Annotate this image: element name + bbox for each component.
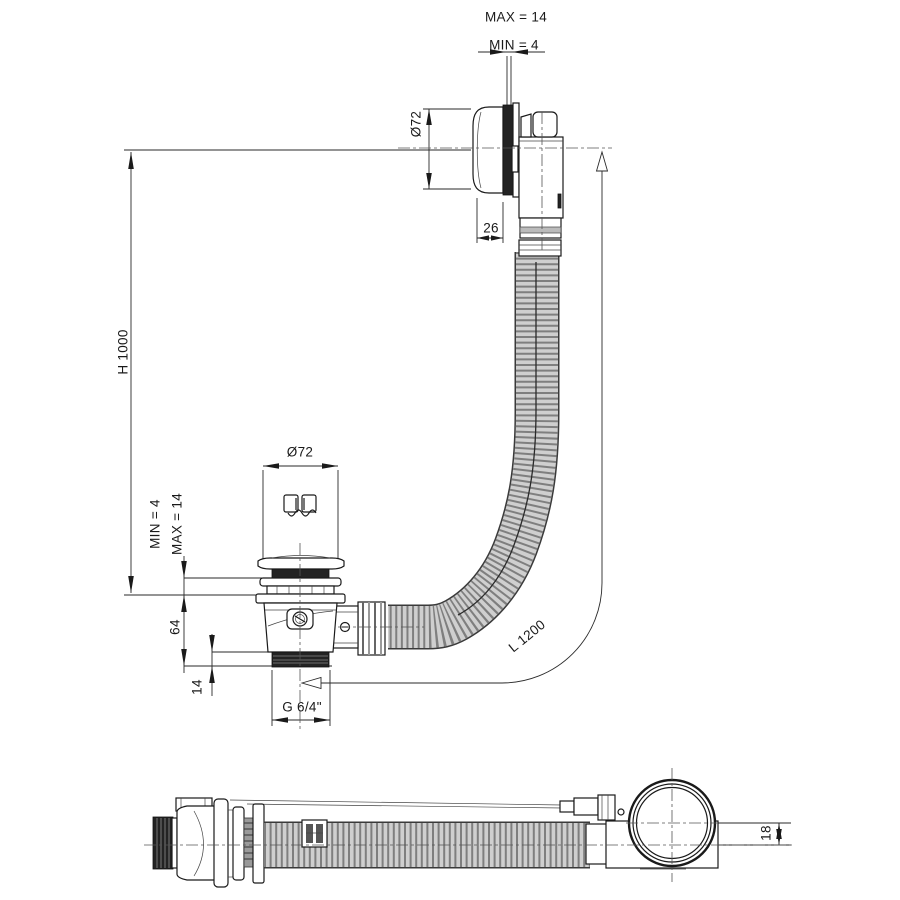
plug-gasket — [272, 569, 329, 578]
dim-label-max-panel-drain: MAX = 14 — [170, 493, 185, 555]
dim-label-plug-diameter: Ø72 — [287, 445, 313, 460]
drain-plug-cap — [258, 558, 344, 569]
dim-label-min-panel-drain: MIN = 4 — [148, 499, 163, 549]
dim-label-axis-offset: 18 — [759, 825, 774, 841]
drawing-sheet: MAX = 14 MIN = 4 Ø72 26 H 1000 Ø72 MIN =… — [0, 0, 900, 900]
centerlines — [144, 112, 792, 882]
drain-body-flange — [256, 594, 345, 603]
dimension-lines — [124, 49, 791, 845]
dim-label-knob-diameter: Ø72 — [409, 111, 424, 137]
hose-clip — [302, 820, 327, 847]
dim-label-thread-size: G 6/4" — [282, 700, 322, 715]
dim-label-body-height: 64 — [168, 619, 183, 635]
dim-label-min-panel-top: MIN = 4 — [489, 38, 539, 53]
side-view — [153, 780, 718, 887]
drain-assembly — [256, 495, 385, 667]
technical-drawing — [0, 0, 900, 900]
side-thread — [153, 817, 173, 869]
flexible-hose — [388, 252, 537, 627]
side-flange — [214, 799, 228, 887]
dim-label-thread-length: 14 — [190, 679, 205, 695]
dim-label-knob-depth: 26 — [483, 221, 499, 236]
plug-lifter — [284, 495, 316, 516]
cable-housing — [533, 112, 557, 137]
dim-label-max-panel-top: MAX = 14 — [485, 10, 547, 25]
overflow-body — [519, 137, 563, 218]
dim-label-height: H 1000 — [116, 329, 131, 374]
drain-thread — [272, 652, 329, 667]
